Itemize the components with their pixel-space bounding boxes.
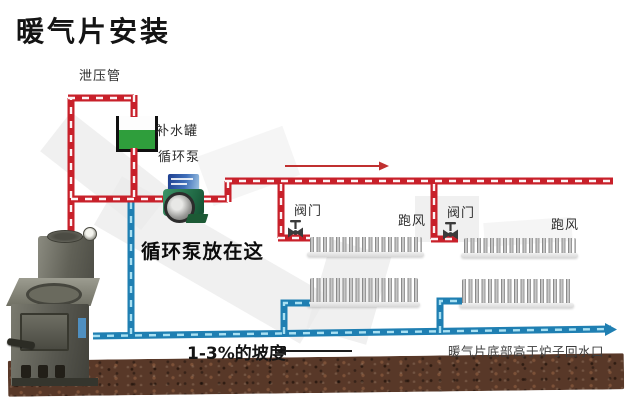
stove-cooktop	[6, 278, 100, 306]
circulation-pump-icon	[163, 174, 209, 223]
pressure-gauge-icon	[83, 227, 97, 241]
air-vent-label-2: 跑风	[551, 214, 579, 233]
stove-lid	[47, 230, 83, 243]
makeup-tank-label: 补水罐	[156, 120, 198, 139]
return-pipe-end-arrow	[605, 323, 617, 336]
page-title: 暖气片安装	[16, 10, 171, 50]
relief-pipe-label: 泄压管	[79, 65, 121, 84]
slope-note: 1-3%的坡度	[187, 339, 286, 364]
diagram-canvas: 暖气片安装 泄压管 补水罐 循环泵 循环泵放在这 阀门 跑风 阀门 跑风 1-3…	[0, 0, 644, 410]
air-vent-label-1: 跑风	[398, 210, 426, 229]
stove-body	[11, 304, 89, 386]
supply-pipe	[68, 95, 613, 240]
coal-stove	[6, 222, 102, 394]
stove-door-handle	[7, 338, 36, 349]
height-note: 暖气片底部高于炉子回水口	[448, 341, 604, 360]
pump-placement-note: 循环泵放在这	[141, 235, 264, 264]
slope-direction-arrow	[276, 347, 352, 356]
flow-direction-arrow	[285, 162, 389, 171]
stove-base	[12, 378, 98, 386]
valve-label-1: 阀门	[294, 200, 322, 219]
circulation-pump-label: 循环泵	[158, 146, 200, 165]
valve-label-2: 阀门	[447, 202, 475, 221]
stove-air-vents	[21, 365, 65, 378]
stove-label-sticker	[78, 318, 86, 338]
stove-door	[20, 313, 69, 351]
pump-base	[186, 214, 209, 223]
cooktop-ring	[26, 283, 82, 306]
